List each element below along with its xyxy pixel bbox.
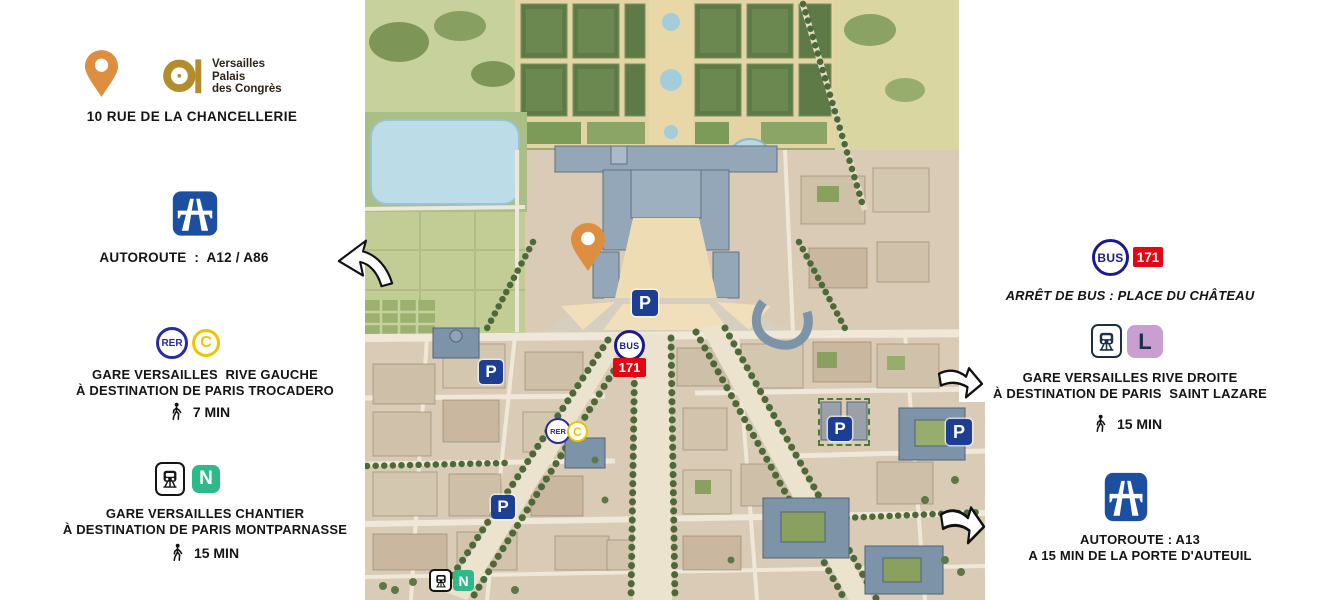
bus-line-171-badge: 171 [1133,247,1163,267]
walk-time-value: 7 MIN [193,404,230,420]
autoroute-name: AUTOROUTE : A13 [1080,532,1200,548]
train-icon [159,468,181,490]
station-name: GARE VERSAILLES RIVE GAUCHE [92,367,318,383]
walk-time-rive-gauche: 7 MIN [120,402,280,421]
brand-logo-icon [162,52,204,96]
arrow-left-icon [334,236,396,288]
motorway-sign-icon [1104,472,1148,522]
walking-person-icon [1094,414,1107,433]
walking-person-icon [171,543,184,562]
line-l-badge: L [1127,325,1163,358]
rer-badge: RER [156,327,188,359]
rive-droite-station-label: GARE VERSAILLES RIVE DROITE À DESTINATIO… [965,370,1295,401]
venue-address: 10 RUE DE LA CHANCELLERIE [52,109,332,124]
bus-stop-label: ARRÊT DE BUS : PLACE DU CHÂTEAU [990,288,1270,303]
walking-person-icon [170,402,183,421]
parking-marker: P [632,290,658,316]
motorway-sign-icon [172,190,218,237]
rive-gauche-station-label: GARE VERSAILLES RIVE GAUCHE À DESTINATIO… [45,367,365,398]
brand-name-line: Palais [212,71,282,84]
station-destination: À DESTINATION DE PARIS MONTPARNASSE [63,522,347,538]
line-n-badge: N [192,465,220,493]
brand-name-line: des Congrès [212,83,282,96]
line-n-marker: N [453,570,474,591]
parking-marker: P [491,495,515,519]
bus-stop-marker: BUS [614,330,645,361]
brand-logo: Versailles Palais des Congrès [162,52,282,96]
autoroute-detail: A 15 MIN DE LA PORTE D'AUTEUIL [1028,548,1251,564]
bus-line-171-marker: 171 [613,358,646,377]
autoroute-a13-label: AUTOROUTE : A13 A 15 MIN DE LA PORTE D'A… [990,532,1290,563]
train-station-badge [1091,324,1122,358]
train-station-badge [155,462,185,496]
map-illustration [365,0,985,600]
bus-badge: BUS [1092,239,1129,276]
station-name: GARE VERSAILLES CHANTIER [106,506,304,522]
train-icon [1095,330,1118,353]
walk-time-rive-droite: 15 MIN [1048,414,1208,433]
parking-marker: P [828,417,852,441]
location-pin-icon [84,47,119,100]
parking-marker: P [946,419,972,445]
rer-line-c-marker: C [567,421,588,442]
train-icon [433,573,449,589]
parking-marker: P [479,360,503,384]
arrow-right-icon [938,505,986,551]
versailles-access-map-page: P BUS 171 P RER C P P P N Versail [0,0,1320,600]
walk-time-chantiers: 15 MIN [120,543,290,562]
autoroute-a12-label: AUTOROUTE : A12 / A86 [44,250,324,266]
walk-time-value: 15 MIN [194,545,239,561]
brand-name-line: Versailles [212,58,282,71]
station-name: GARE VERSAILLES RIVE DROITE [1023,370,1238,386]
station-destination: À DESTINATION DE PARIS TROCADERO [76,383,334,399]
venue-location-pin-icon [570,222,606,272]
line-c-badge: C [192,329,220,357]
station-destination: À DESTINATION DE PARIS SAINT LAZARE [993,386,1267,402]
chantiers-station-label: GARE VERSAILLES CHANTIER À DESTINATION D… [30,506,380,537]
walk-time-value: 15 MIN [1117,416,1162,432]
train-station-marker [429,569,452,592]
